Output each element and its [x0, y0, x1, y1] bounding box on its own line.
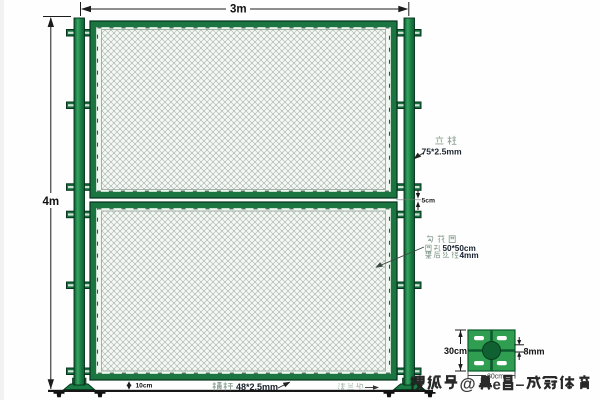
svg-text:–: –	[516, 376, 525, 393]
svg-text:@: @	[460, 375, 476, 393]
svg-text:5cm: 5cm	[422, 198, 436, 205]
svg-text:3m: 3m	[230, 4, 247, 16]
svg-text:e: e	[493, 376, 501, 393]
svg-text:4m: 4m	[43, 196, 60, 208]
svg-text:48*2.5mm: 48*2.5mm	[236, 382, 278, 392]
svg-text:75*2.5mm: 75*2.5mm	[422, 147, 462, 157]
svg-text:30cm: 30cm	[444, 346, 467, 356]
svg-text:4mm: 4mm	[460, 251, 479, 260]
svg-text:10cm: 10cm	[136, 383, 153, 390]
svg-text:8mm: 8mm	[524, 347, 545, 357]
